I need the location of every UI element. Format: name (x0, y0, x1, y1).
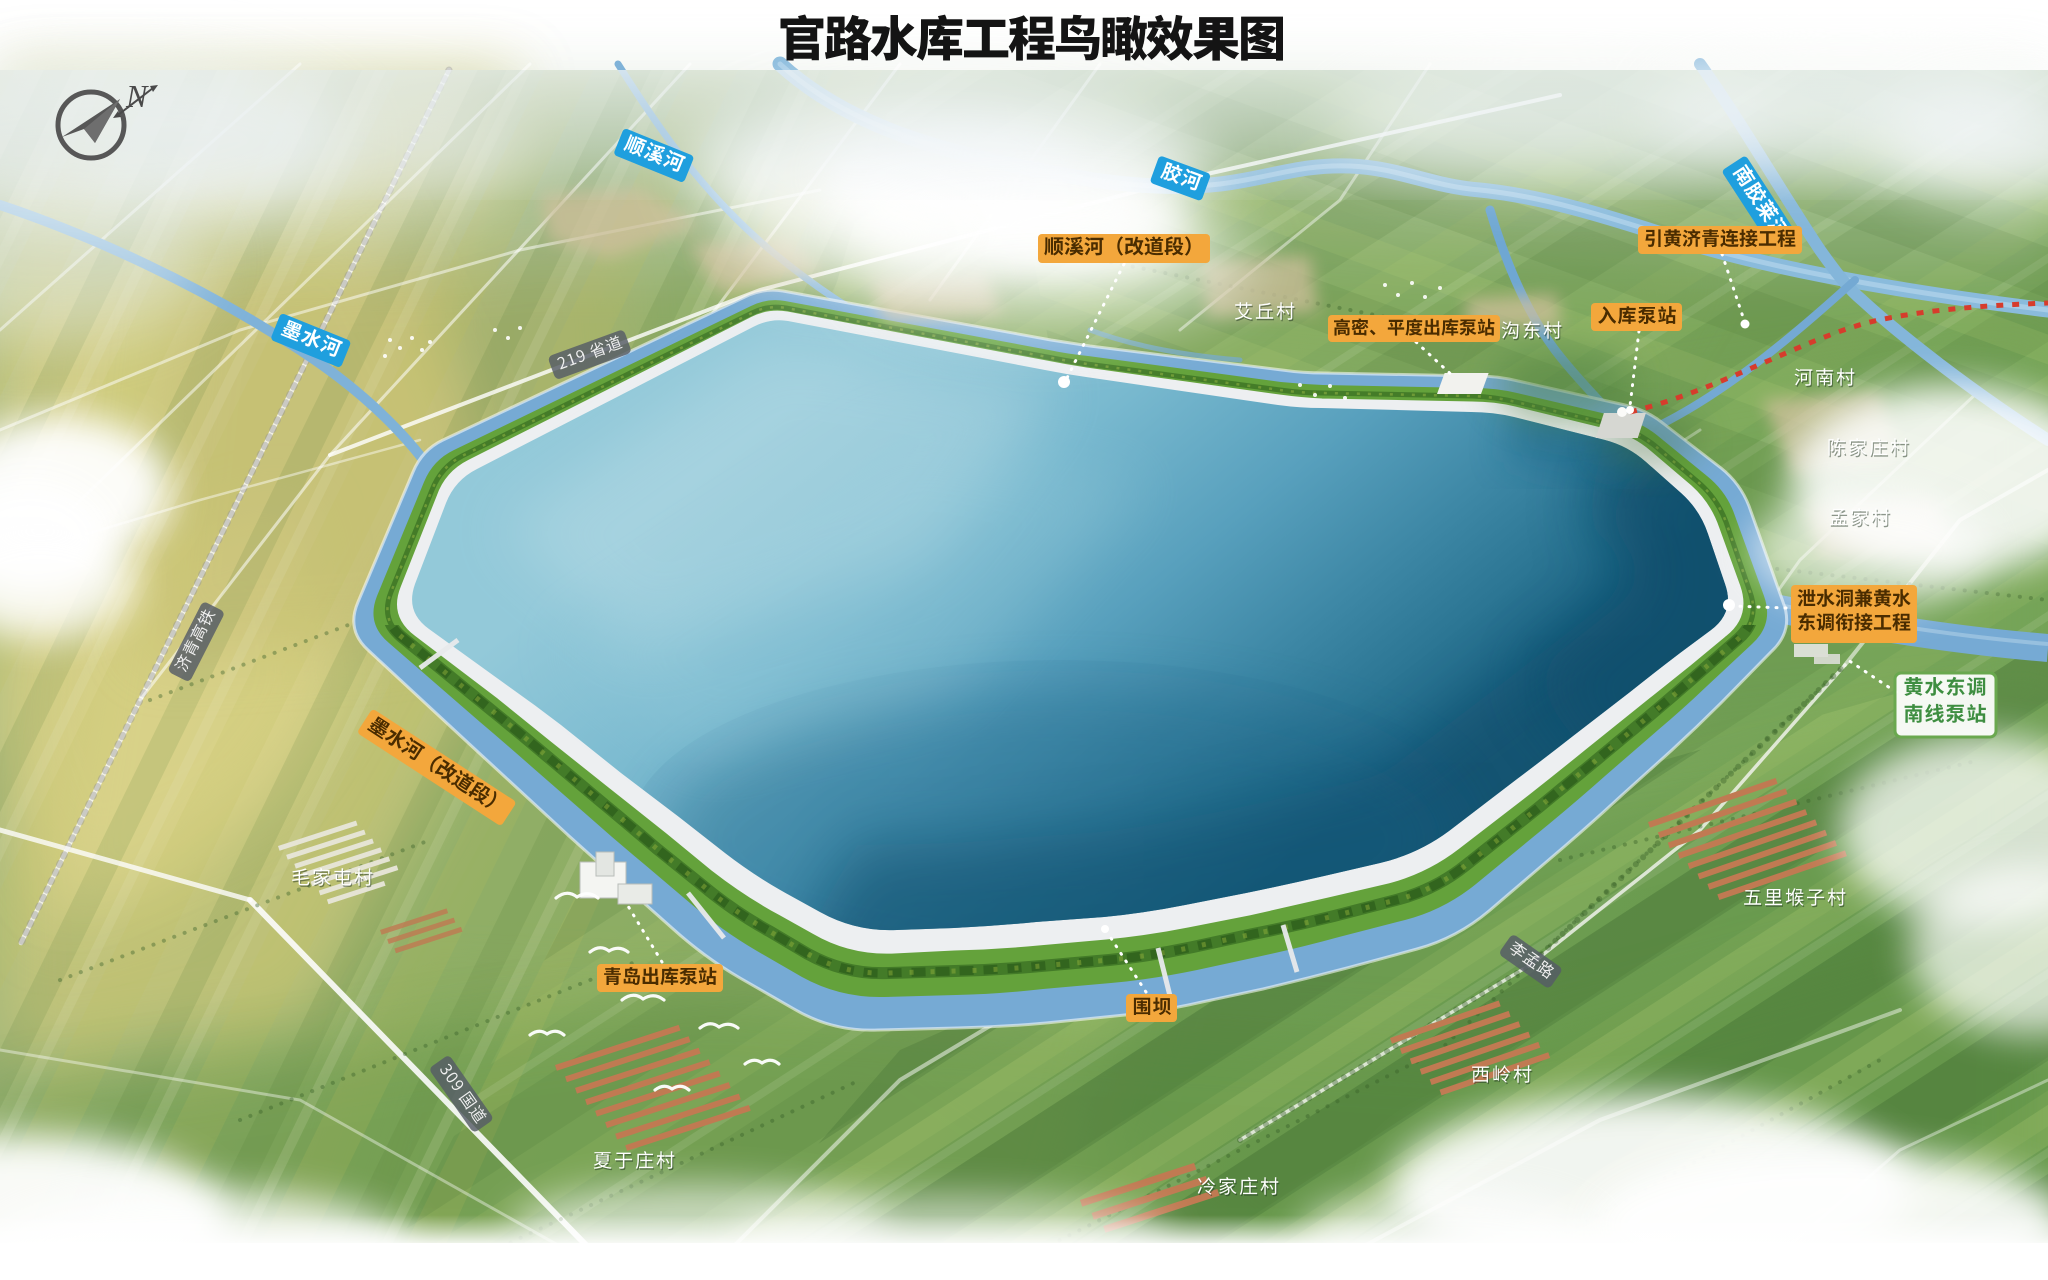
svg-text:N: N (125, 78, 149, 114)
